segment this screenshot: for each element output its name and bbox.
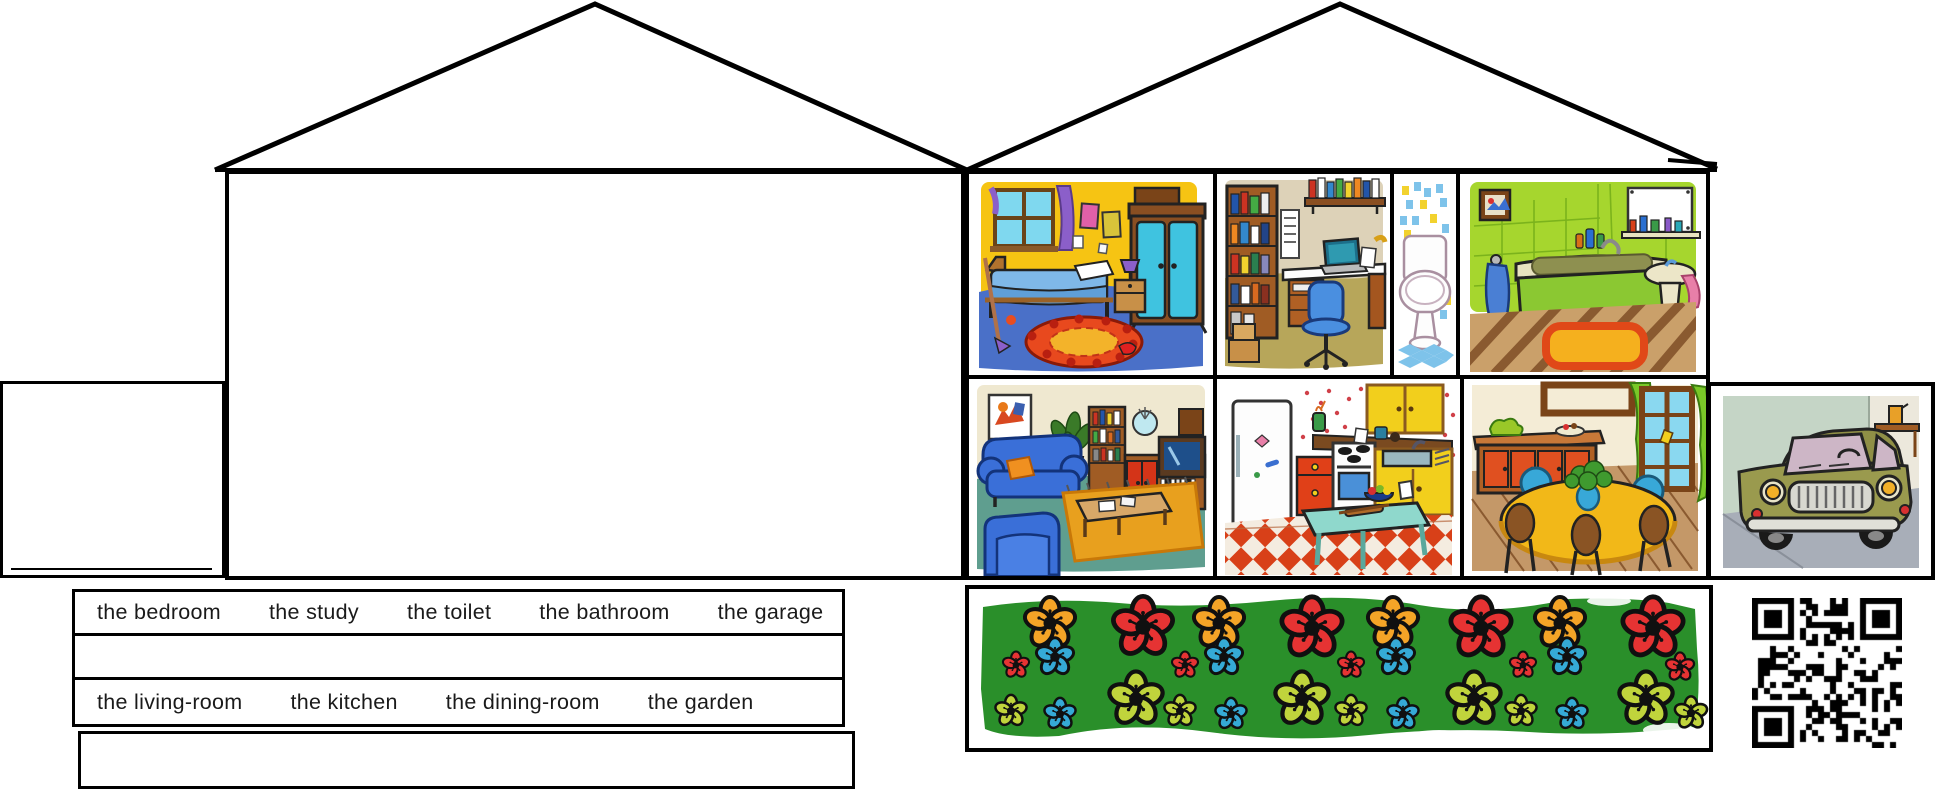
- toilet-image: [1394, 174, 1456, 375]
- right-eave-mark: [1668, 160, 1717, 164]
- right-house-grid: [965, 170, 1710, 580]
- annex-double-line: [11, 568, 212, 570]
- bedroom-illustration: [969, 174, 1213, 375]
- word-bank-row-2: the living-room the kitchen the dining-r…: [75, 680, 842, 724]
- bathroom-image: [1460, 174, 1706, 375]
- left-annex-box: [0, 381, 225, 578]
- bedroom-image: [969, 174, 1213, 375]
- left-house-body: [225, 170, 965, 580]
- kitchen-illustration: [1217, 379, 1460, 576]
- word-the-dining-room: the dining-room: [446, 690, 600, 715]
- living-room-illustration: [969, 379, 1213, 576]
- empty-answer-box: [78, 731, 855, 789]
- dining-room-illustration: [1464, 379, 1706, 576]
- word-the-bathroom: the bathroom: [539, 600, 669, 625]
- left-roof: [215, 4, 967, 170]
- word-the-kitchen: the kitchen: [291, 690, 398, 715]
- qr-code: [1752, 598, 1902, 748]
- garden-illustration: [969, 589, 1709, 748]
- word-bank-row-1: the bedroom the study the toilet the bat…: [75, 592, 842, 636]
- word-the-garage: the garage: [718, 600, 824, 625]
- worksheet-page: the bedroom the study the toilet the bat…: [0, 0, 1936, 799]
- right-roof: [967, 4, 1717, 170]
- word-bank-empty-row: [75, 636, 842, 680]
- word-the-toilet: the toilet: [407, 600, 491, 625]
- study-image: [1217, 174, 1390, 375]
- word-the-living-room: the living-room: [97, 690, 243, 715]
- word-the-garden: the garden: [648, 690, 754, 715]
- kitchen-image: [1217, 379, 1460, 576]
- word-bank-table: the bedroom the study the toilet the bat…: [72, 589, 845, 727]
- bathroom-illustration: [1460, 174, 1706, 375]
- toilet-illustration: [1394, 174, 1456, 375]
- dining-room-image: [1464, 379, 1706, 576]
- garage-illustration: [1711, 386, 1931, 576]
- word-the-bedroom: the bedroom: [97, 600, 221, 625]
- word-the-study: the study: [269, 600, 359, 625]
- study-illustration: [1217, 174, 1390, 375]
- garden-image: [965, 585, 1713, 752]
- living-room-image: [969, 379, 1213, 576]
- garage-image: [1707, 382, 1935, 580]
